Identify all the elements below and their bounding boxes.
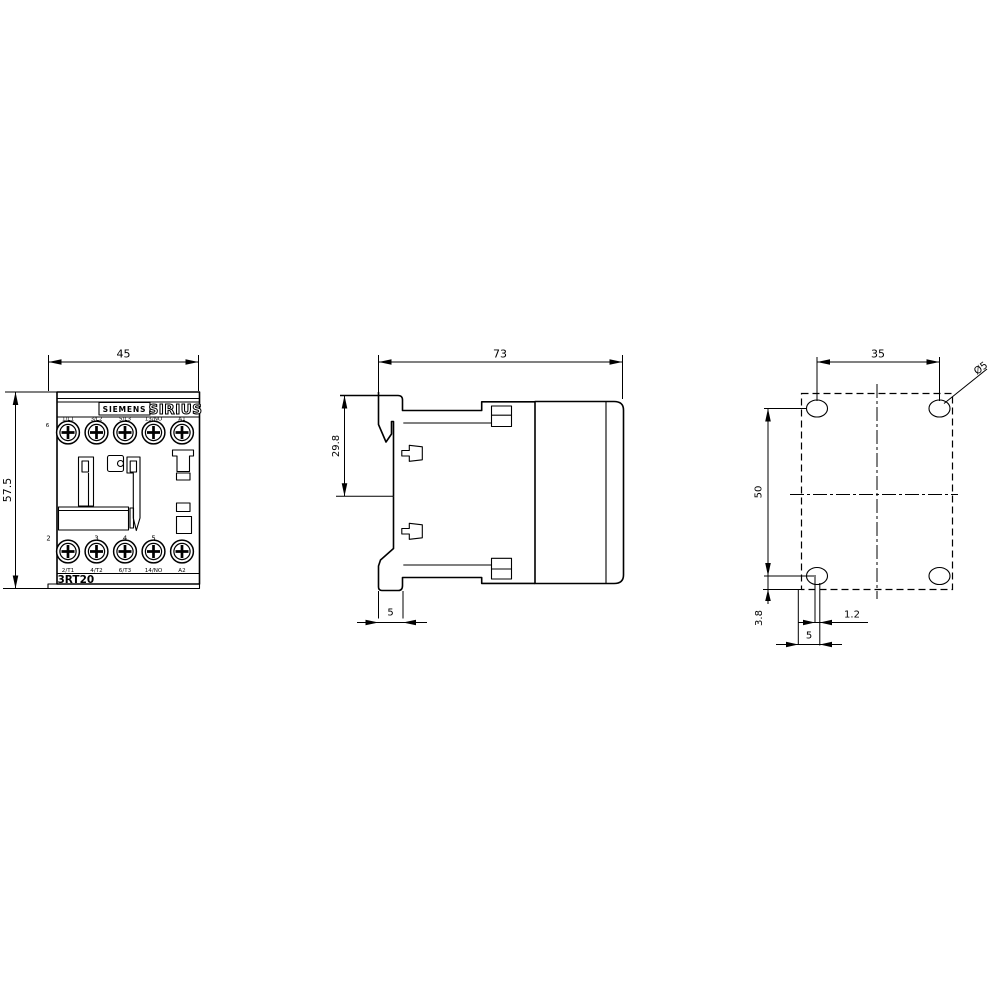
- screw-terminal: [85, 421, 108, 444]
- side-foot-dimension: 5: [357, 591, 427, 625]
- terminal-label: A2: [178, 568, 185, 574]
- side-foot-label: 5: [387, 608, 393, 619]
- screw-terminal: [57, 421, 80, 444]
- side-profile: [340, 392, 624, 591]
- hole-diameter-callout: Ø5: [944, 359, 990, 403]
- snap-lug: [402, 445, 423, 461]
- mounting-spacing-y-dimension: 50: [754, 409, 817, 577]
- hole-diameter-label: Ø5: [972, 359, 991, 377]
- side-rail-label: 29.8: [331, 435, 342, 457]
- mounting-offset-y-dimension: 3.8: [754, 576, 802, 626]
- dimension-drawing: 45 57.5 SIEMENS SIRIUS: [0, 0, 1000, 1000]
- screw-terminal: [57, 540, 80, 563]
- screw-terminal: [85, 540, 108, 563]
- front-height-label: 57.5: [1, 478, 14, 503]
- pole-number: 2: [46, 535, 50, 543]
- screw-terminal: [114, 540, 137, 563]
- front-view: 45 57.5 SIEMENS SIRIUS: [1, 348, 202, 589]
- mounting-offset-x-label: 1.2: [844, 610, 860, 621]
- mounting-holes: [807, 400, 951, 585]
- front-height-dimension: 57.5: [1, 392, 57, 589]
- bottom-screw-row: [57, 540, 194, 563]
- side-depth-dimension: 73: [379, 348, 623, 400]
- mounting-slot-label: 5: [806, 631, 812, 642]
- front-width-dimension: 45: [49, 348, 199, 392]
- mounting-offset-y-label: 3.8: [754, 610, 765, 626]
- front-width-label: 45: [117, 348, 131, 361]
- screw-terminal: [171, 540, 194, 563]
- device-outline-dashed: [802, 394, 953, 590]
- aux-contact-slot: [173, 450, 194, 472]
- mounting-offset-x-dimension: 1.2: [798, 610, 868, 626]
- snap-lug: [402, 523, 423, 539]
- screw-terminal: [142, 540, 165, 563]
- mounting-plan: 35 Ø5 50 3.8: [754, 348, 991, 648]
- brand-label: SIEMENS: [103, 405, 147, 414]
- side-rail-dimension: 29.8: [331, 396, 394, 497]
- terminal-label: 14/NO: [145, 568, 163, 574]
- mounting-spacing-x-label: 35: [871, 348, 885, 361]
- model-label: 3RT20: [58, 574, 95, 586]
- release-notch: [118, 461, 124, 467]
- housing-block: [535, 402, 624, 584]
- side-view: 73 29.8: [331, 348, 624, 626]
- screw-terminal: [171, 421, 194, 444]
- terminal-label: 6/T3: [119, 568, 132, 574]
- mounting-slot-dimension: 5: [776, 631, 842, 648]
- mounting-spacing-y-label: 50: [754, 486, 765, 499]
- mounting-hole: [807, 400, 828, 417]
- mounting-hole: [929, 568, 950, 585]
- front-middle-details: [59, 450, 194, 534]
- corner-mark: 6: [46, 423, 50, 429]
- top-screw-row: [57, 421, 194, 444]
- screw-terminal: [142, 421, 165, 444]
- side-depth-label: 73: [493, 348, 507, 361]
- mounting-hole: [929, 400, 950, 417]
- screw-terminal: [114, 421, 137, 444]
